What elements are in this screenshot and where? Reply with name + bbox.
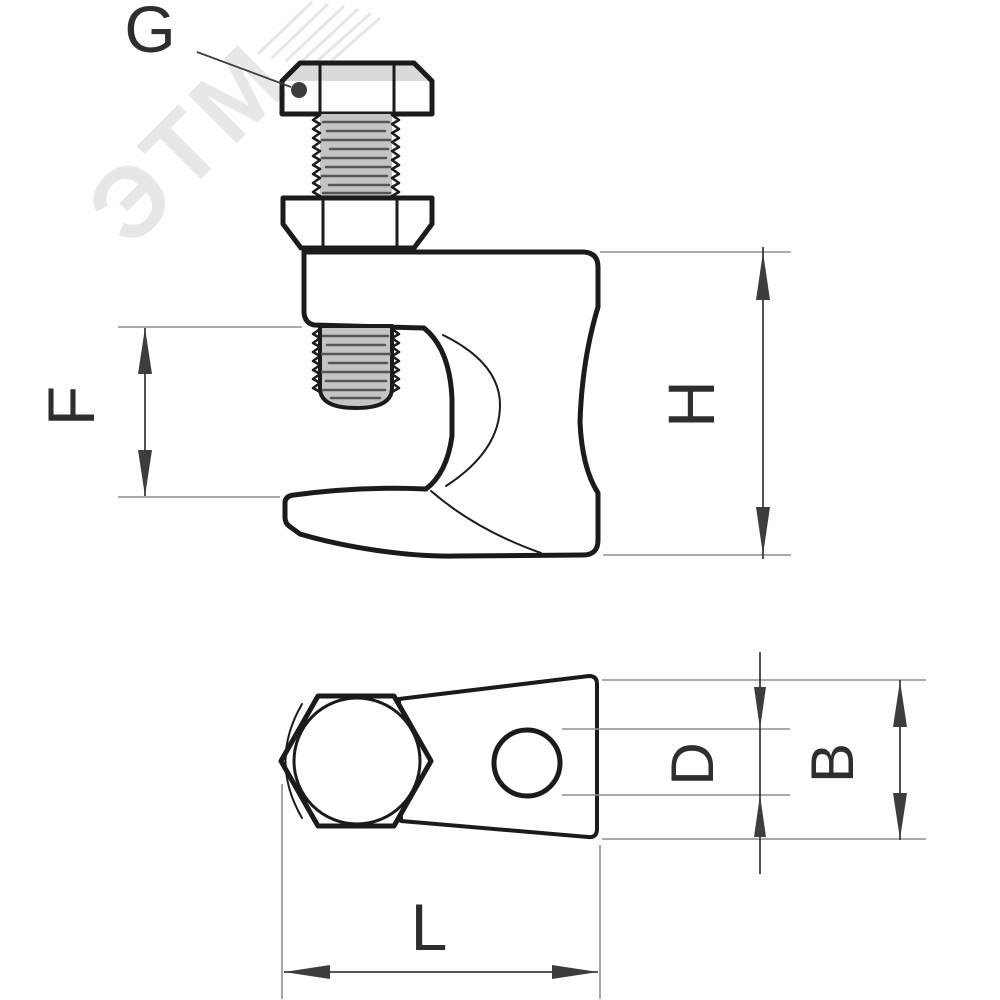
bottom-view (281, 676, 597, 837)
drawing-page: ЭТМ (0, 0, 1000, 1000)
dimension-label-f: F (34, 386, 108, 426)
screw-tip-body (320, 326, 392, 408)
technical-drawing-canvas: ЭТМ (0, 0, 1000, 1000)
dimension-label-g: G (124, 0, 175, 66)
upper-thread (313, 114, 399, 198)
leader-dot-g (291, 82, 307, 98)
nut-outline (283, 198, 432, 248)
dimension-label-d: D (659, 742, 726, 785)
screw-tip (313, 326, 399, 408)
dimension-label-h: H (654, 380, 728, 428)
dimension-label-l: L (411, 890, 448, 964)
hex-nut (283, 198, 432, 248)
dimension-label-b: B (799, 743, 866, 783)
